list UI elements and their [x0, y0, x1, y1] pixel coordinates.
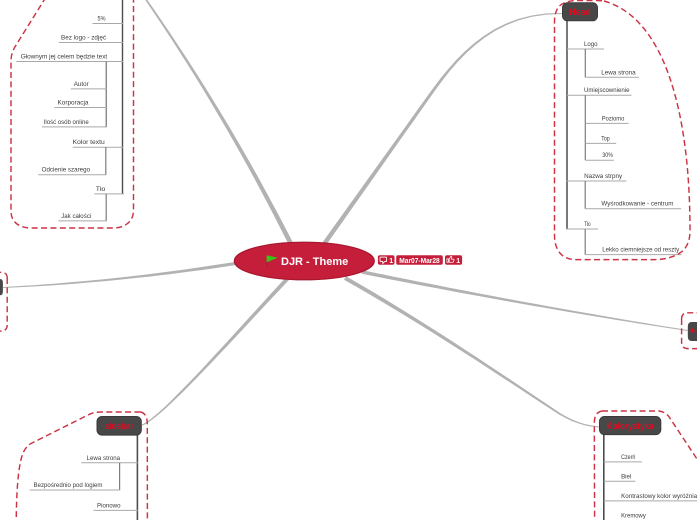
svg-text:Kontrastowy kolor wyróżnia: Kontrastowy kolor wyróżnia [621, 493, 697, 500]
svg-text:Kremowy: Kremowy [621, 512, 646, 519]
svg-text:Biel: Biel [621, 473, 632, 480]
svg-text:Umiejscownienie: Umiejscownienie [584, 87, 630, 94]
svg-text:Lewa strona: Lewa strona [87, 455, 121, 462]
svg-text:Czerń: Czerń [621, 454, 636, 461]
svg-text:Bez logo - zdjęć: Bez logo - zdjęć [61, 35, 107, 42]
svg-text:DJR - Theme: DJR - Theme [281, 256, 348, 268]
svg-text:Kolor textu: Kolor textu [73, 139, 105, 146]
svg-text:Lekko ciemniejsze od reszty: Lekko ciemniejsze od reszty [602, 247, 680, 254]
svg-text:Lewa strona: Lewa strona [601, 69, 636, 76]
svg-text:Mar07-Mar28: Mar07-Mar28 [399, 256, 440, 265]
svg-text:Kolorystyka: Kolorystyka [607, 421, 655, 432]
svg-text:Głownym jej celem będzie text: Głownym jej celem będzie text [21, 54, 108, 61]
svg-text:30%: 30% [602, 152, 613, 159]
svg-text:Tło: Tło [96, 186, 106, 193]
svg-text:Ilość osób online: Ilość osób online [44, 119, 89, 126]
svg-text:Tło: Tło [584, 221, 591, 228]
svg-text:5%: 5% [98, 16, 106, 23]
svg-text:Top: Top [601, 135, 610, 142]
svg-text:Bezpośrednio pod logiem: Bezpośrednio pod logiem [34, 482, 103, 489]
svg-text:Korporacja: Korporacja [58, 100, 89, 107]
svg-text:Poziomo: Poziomo [602, 115, 625, 122]
svg-text:Autor: Autor [74, 81, 90, 88]
svg-text:1: 1 [389, 258, 393, 265]
svg-text:sidebar: sidebar [105, 421, 134, 431]
svg-text:Head: Head [570, 7, 591, 17]
svg-text:Nazwa strpny: Nazwa strpny [584, 173, 623, 180]
svg-text:1: 1 [456, 258, 460, 265]
svg-text:Jak całości: Jak całości [61, 213, 91, 220]
svg-text:Wyśrodkowanie - centrum: Wyśrodkowanie - centrum [601, 201, 673, 208]
svg-text:Logo: Logo [584, 41, 598, 48]
svg-text:Odcienie szarego: Odcienie szarego [42, 167, 91, 174]
svg-text:Pionowo: Pionowo [97, 502, 121, 509]
